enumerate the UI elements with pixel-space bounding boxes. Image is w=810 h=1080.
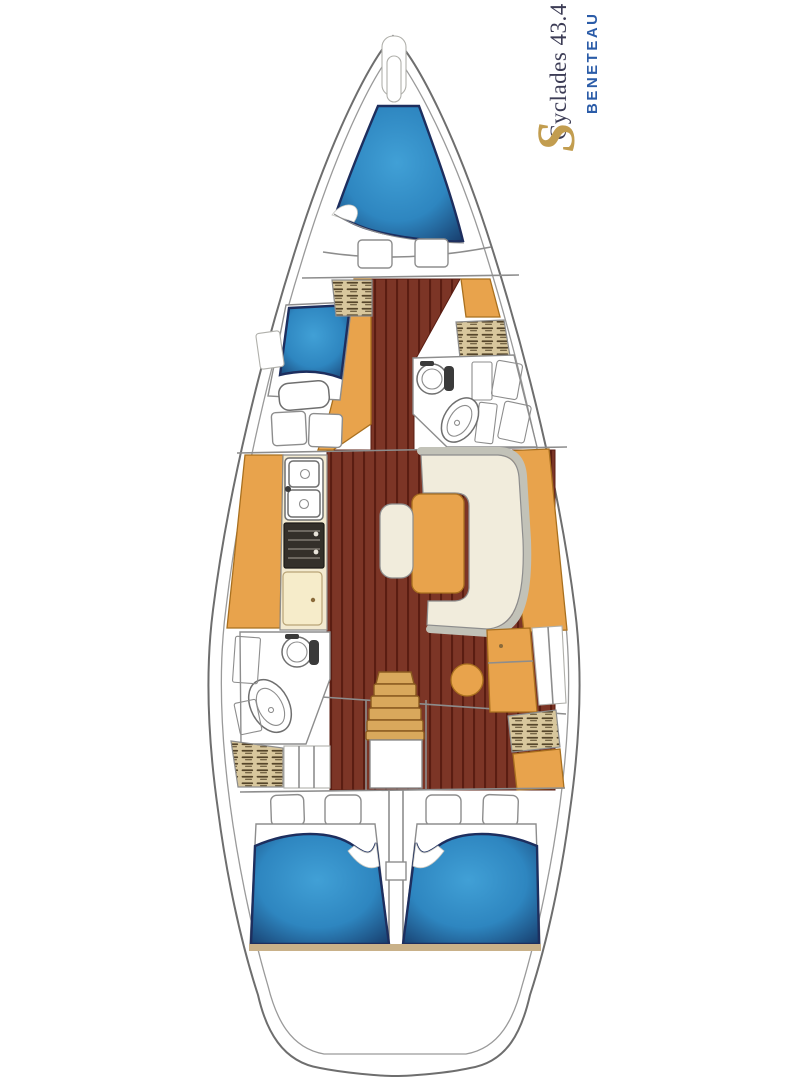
- chart-table-latch: [499, 644, 503, 648]
- forward-storage-box: [358, 240, 392, 268]
- nav-seat: [513, 749, 564, 790]
- aft-head: [231, 632, 330, 788]
- boat-floor-plan: Cyclades 43.4 BENETEAU S: [0, 0, 810, 1080]
- port-forward-berth-area: [256, 279, 372, 450]
- stove-knob: [314, 550, 319, 555]
- stove-icon: [284, 523, 324, 568]
- nav-stool: [451, 664, 483, 696]
- model-name-label: Cyclades 43.4: [546, 3, 571, 140]
- port-louvered-locker: [332, 280, 372, 316]
- galley: [227, 455, 327, 630]
- saloon-table: [412, 494, 464, 593]
- storage-box: [308, 413, 342, 447]
- pillow: [270, 794, 304, 826]
- stern-bulkhead: [249, 944, 541, 951]
- brand-name-label: BENETEAU: [584, 11, 601, 114]
- bow-roller-icon: [387, 56, 401, 102]
- hull-locker: [256, 331, 285, 370]
- companionway-base: [370, 740, 422, 788]
- port-berth-pillow: [278, 380, 330, 411]
- nav-louvered-locker: [508, 710, 560, 752]
- floor-plan-canvas: Cyclades 43.4 BENETEAU S: [0, 0, 810, 1080]
- pillow: [426, 795, 461, 826]
- toilet-control: [285, 634, 299, 639]
- sink-basin: [288, 490, 320, 517]
- pillow: [325, 795, 361, 826]
- sink-basin: [289, 461, 319, 487]
- locker-under-head: [284, 746, 330, 788]
- storage-box: [271, 411, 307, 446]
- toilet-seat-hinge: [444, 366, 454, 391]
- fridge-latch: [311, 598, 315, 602]
- saloon-stool: [380, 504, 413, 578]
- stove-knob: [314, 532, 319, 537]
- faucet-icon: [285, 486, 291, 492]
- aft-port-louvered-locker: [231, 741, 283, 787]
- starboard-louvered-locker: [456, 320, 510, 358]
- divider-notch: [386, 862, 406, 880]
- forward-storage-box: [415, 239, 448, 267]
- branding: Cyclades 43.4 BENETEAU S: [526, 3, 601, 152]
- beneteau-logo-icon: S: [526, 122, 586, 152]
- fridge-top-lid: [283, 572, 322, 625]
- chart-table: [487, 628, 537, 712]
- toilet-control: [420, 361, 434, 366]
- aft-cabins: [240, 788, 565, 951]
- toilet-seat-hinge: [309, 640, 319, 665]
- pillow: [482, 794, 518, 826]
